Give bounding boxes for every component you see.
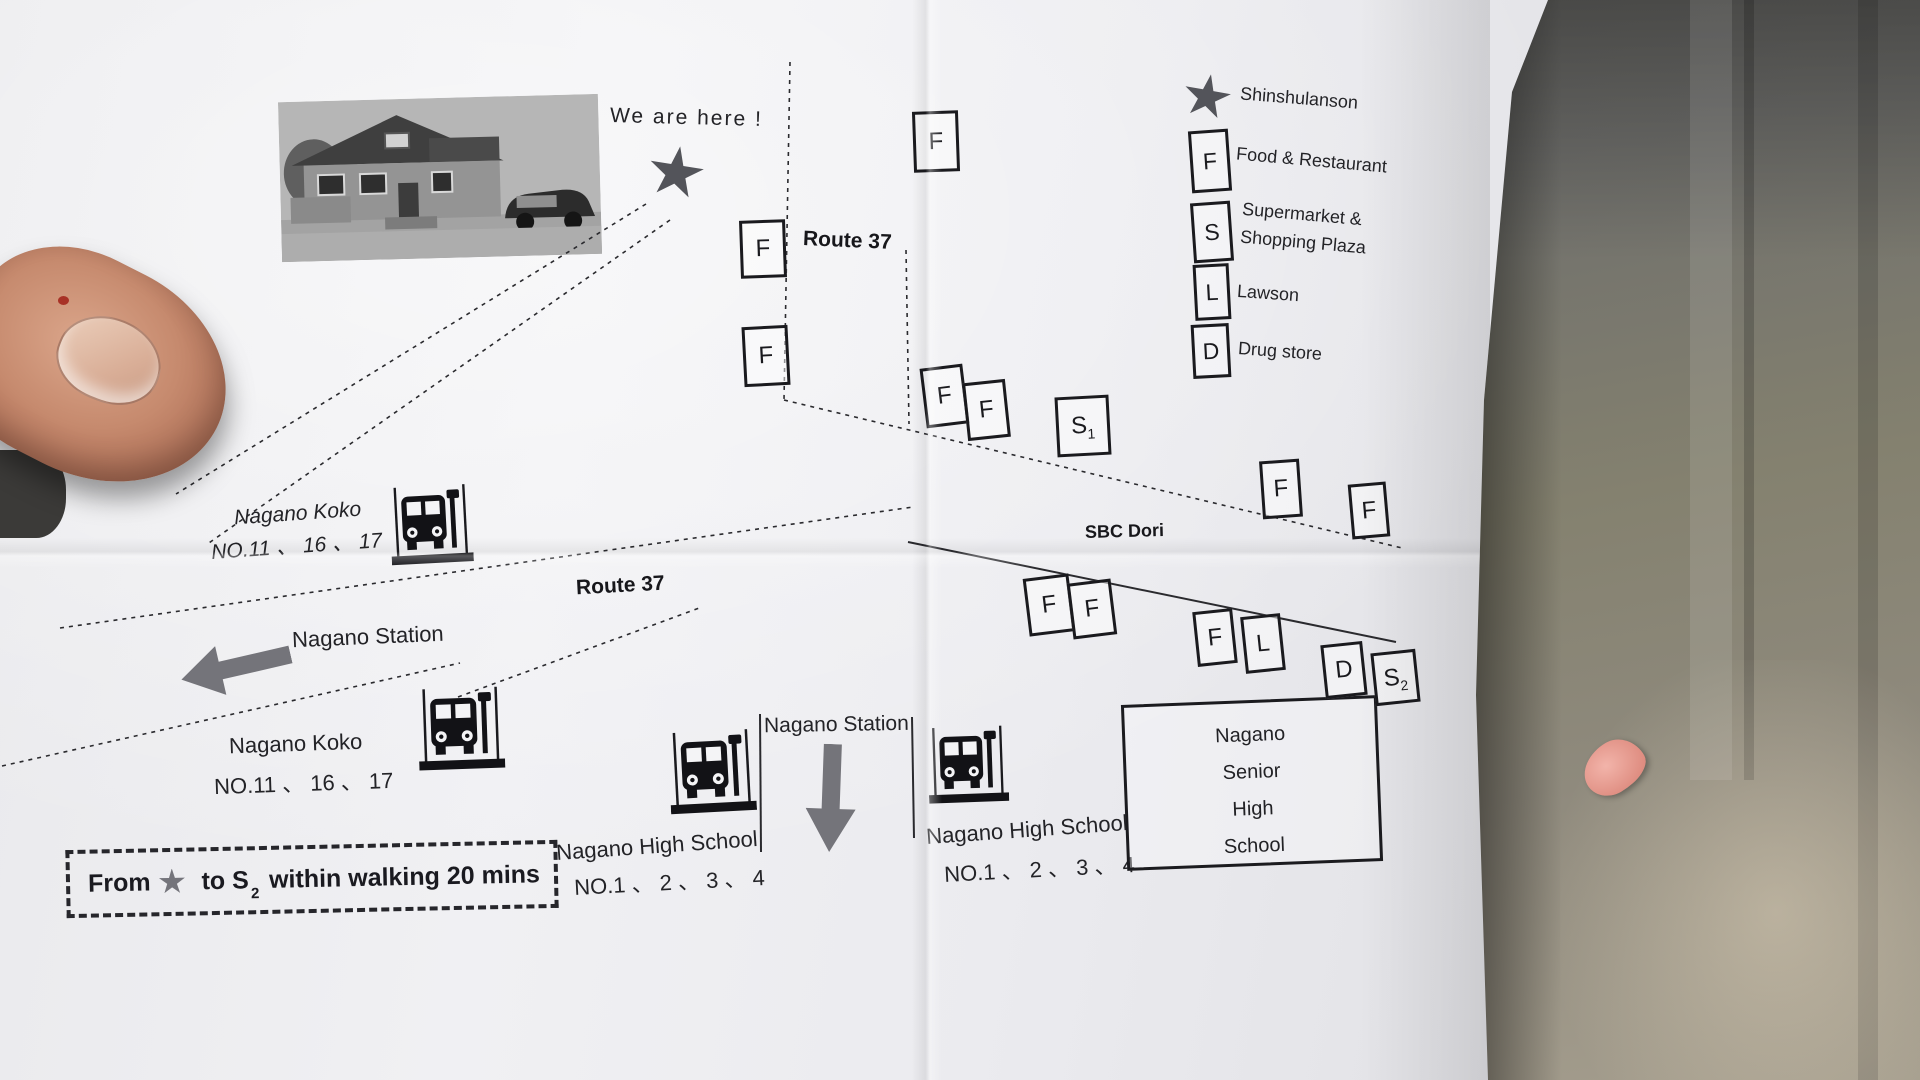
map-marker-F: F — [741, 325, 790, 387]
road-line — [458, 607, 702, 697]
map-marker-F: F — [1348, 481, 1391, 539]
map-marker-S1: S1 — [1054, 395, 1111, 458]
map-marker-F: F — [1067, 579, 1117, 640]
bus-stop-icon — [927, 724, 1010, 807]
thumb-cut — [58, 296, 69, 305]
note-subscript: 2 — [251, 885, 260, 902]
nagano-station-mid-label: Nagano Station — [764, 712, 909, 739]
legend-lawson-label: Lawson — [1236, 281, 1299, 306]
road-line — [176, 204, 646, 494]
legend-letter: L — [1205, 278, 1219, 306]
legend-drugstore-box: D — [1191, 323, 1232, 379]
route37-mid-label: Route 37 — [575, 572, 665, 601]
we-are-here-label: We are here ! — [610, 104, 763, 132]
road-line — [60, 507, 913, 628]
note-text: within walking 20 mins — [269, 860, 540, 895]
legend-letter: S — [1203, 218, 1220, 246]
concrete-light-patch — [1560, 660, 1920, 1080]
note-star-icon — [158, 868, 186, 896]
legend-letter: F — [1202, 147, 1218, 175]
bus-stop-label: Nagano Koko — [229, 729, 363, 760]
bus-stop-icon — [388, 482, 474, 568]
map-marker-F: F — [962, 379, 1011, 441]
note-text: to S — [201, 866, 249, 896]
bus-stop-label: NO.11 、 16 、 17 — [213, 763, 393, 801]
photo-scene: We are here ! Route 37 Route 37 SBC Dori… — [0, 0, 1920, 1080]
road-line — [912, 717, 914, 838]
bus-stop-hs-right — [927, 724, 1010, 807]
bus-stop-hs-left — [667, 727, 757, 817]
road-line — [906, 250, 909, 424]
map-marker-F: F — [912, 110, 960, 173]
bus-stop-koko-lower — [417, 685, 506, 774]
legend-letter: D — [1202, 337, 1220, 365]
map-marker-F: F — [1259, 459, 1303, 520]
bus-stop-icon — [667, 727, 757, 817]
nagano-senior-high-school-box: Nagano Senior High School — [1121, 695, 1383, 871]
sbc-dori-label: SBC Dori — [1085, 520, 1165, 543]
bus-stop-koko-upper — [388, 482, 474, 568]
legend-supermarket-box: S — [1190, 201, 1234, 264]
map-marker-F: F — [739, 219, 787, 279]
map-marker-F: F — [920, 364, 970, 429]
map-marker-D: D — [1320, 641, 1367, 699]
road-line — [760, 714, 761, 852]
walking-note: Fromto S2within walking 20 mins — [65, 840, 558, 918]
legend-lawson-box: L — [1193, 263, 1232, 321]
route37-top-label: Route 37 — [803, 227, 893, 255]
map-marker-S2: S2 — [1370, 649, 1420, 706]
map-marker-L: L — [1240, 613, 1286, 674]
map-marker-F: F — [1192, 608, 1238, 667]
road-line — [908, 542, 1396, 642]
bus-stop-icon — [417, 685, 506, 774]
note-text: From — [88, 868, 151, 898]
legend-food-box: F — [1188, 129, 1232, 194]
